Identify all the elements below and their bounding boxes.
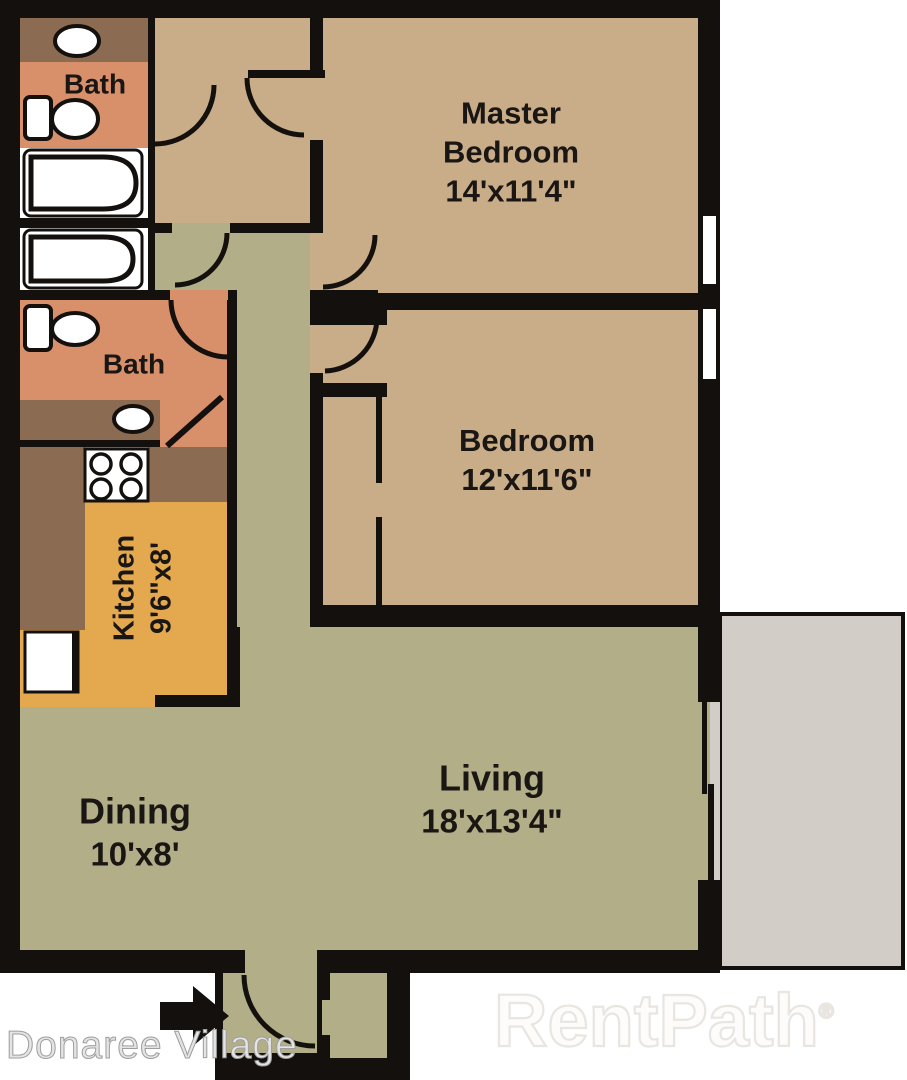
toilet-icon-lower (25, 306, 98, 350)
bath-lower-name: Bath (103, 346, 165, 381)
linen-closet-door-line (167, 397, 222, 446)
label-master-bedroom: Master Bedroom 14'x11'4" (443, 93, 579, 210)
toilet-icon-upper (25, 97, 98, 139)
bedroom-name: Bedroom (459, 421, 595, 460)
label-bedroom: Bedroom 12'x11'6" (459, 421, 595, 499)
dining-dims: 10'x8' (79, 834, 191, 876)
kitchen-dims: 9'6"x8' (143, 535, 180, 641)
door-arc-bath-upper (155, 85, 214, 144)
living-dims: 18'x13'4" (421, 801, 562, 843)
label-dining: Dining 10'x8' (79, 789, 191, 876)
stove-icon (85, 449, 148, 501)
door-arc-bath-lower (171, 300, 228, 357)
sliding-door-panels (702, 702, 714, 880)
door-arc-master-bedroom (323, 235, 375, 287)
label-bath-lower: Bath (103, 346, 165, 381)
bath-upper-name: Bath (64, 66, 126, 101)
master-dims: 14'x11'4" (443, 172, 579, 211)
floor-plan: Bath Bath Master Bedroom 14'x11'4" Bedro… (0, 0, 907, 1080)
sink-icon-upper (55, 26, 99, 56)
door-arc-bedroom (325, 317, 377, 371)
label-living: Living 18'x13'4" (421, 756, 562, 843)
living-name: Living (421, 756, 562, 801)
community-name: Donaree Village (6, 1024, 298, 1068)
label-bath-upper: Bath (64, 66, 126, 101)
door-arc-hall-dressing (175, 233, 227, 285)
bathtub-icon-lower (24, 230, 142, 288)
sink-icon-lower (114, 406, 152, 432)
bathtub-icon-upper (24, 150, 142, 216)
door-arc-master-dressing (247, 78, 304, 135)
dining-name: Dining (79, 789, 191, 834)
label-kitchen: Kitchen 9'6"x8' (106, 535, 179, 641)
master-name-line2: Bedroom (443, 132, 579, 171)
fridge-icon (25, 632, 78, 692)
kitchen-name: Kitchen (106, 535, 143, 641)
bedroom-dims: 12'x11'6" (459, 460, 595, 499)
master-name-line1: Master (443, 93, 579, 132)
